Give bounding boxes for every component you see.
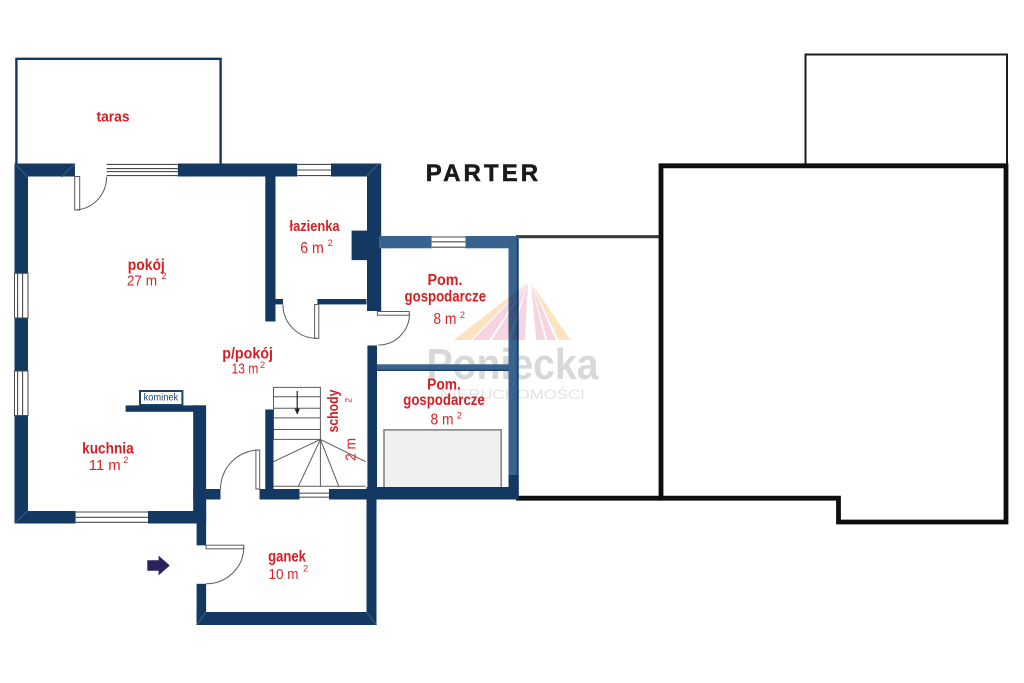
svg-text:łazienka: łazienka [290,219,341,235]
svg-text:6 m: 6 m [300,240,324,257]
svg-text:pokój: pokój [128,257,165,274]
svg-text:2: 2 [123,455,128,465]
svg-text:taras: taras [97,109,130,126]
svg-text:8 m: 8 m [431,412,454,429]
svg-text:PARTER: PARTER [426,160,542,187]
svg-text:2: 2 [162,271,167,281]
svg-text:kominek: kominek [144,392,179,404]
svg-text:2: 2 [303,564,308,574]
svg-text:13 m: 13 m [232,360,259,377]
svg-text:2: 2 [328,238,333,248]
svg-text:2: 2 [457,411,462,421]
svg-text:Pom.: Pom. [427,377,461,394]
svg-text:gospodarcze: gospodarcze [403,392,485,409]
svg-text:2: 2 [344,398,354,403]
svg-text:10 m: 10 m [269,566,299,583]
svg-text:Pom.: Pom. [428,272,463,289]
svg-text:2 m: 2 m [342,438,359,461]
svg-text:schody: schody [325,389,342,433]
svg-text:gospodarcze: gospodarcze [405,289,487,306]
svg-text:11 m: 11 m [89,457,121,474]
svg-text:2: 2 [260,360,265,370]
svg-text:27 m: 27 m [127,273,157,290]
svg-text:2: 2 [460,310,465,320]
svg-text:8 m: 8 m [433,311,456,328]
svg-text:ganek: ganek [268,549,306,566]
